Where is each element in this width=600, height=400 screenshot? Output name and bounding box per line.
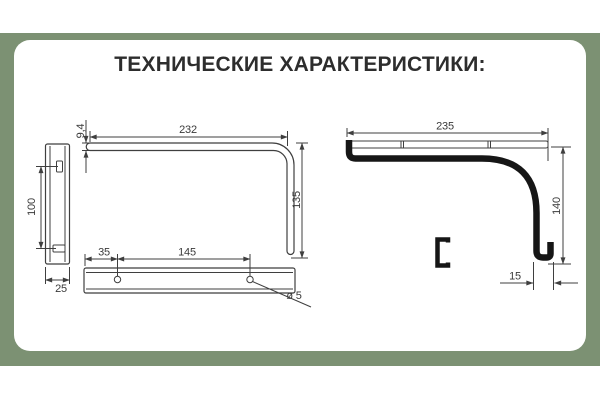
mount-bar-view: 35 145 ø 5 <box>84 247 311 308</box>
dim-hole-diameter: ø 5 <box>253 282 312 308</box>
dim-15: 15 <box>500 262 578 290</box>
dim-label-140: 140 <box>551 197 563 215</box>
wall-plate-side-view: 100 25 <box>26 144 70 295</box>
dim-label-145: 145 <box>178 247 196 259</box>
dim-25: 25 <box>46 267 70 295</box>
dim-100: 100 <box>26 167 58 249</box>
bracket-outline <box>86 143 294 255</box>
dim-label-235: 235 <box>436 121 454 133</box>
dim-label-35: 35 <box>98 247 110 259</box>
dim-label-9-4: 9,4 <box>75 124 87 139</box>
dim-label-232: 232 <box>179 124 197 136</box>
dim-label-15: 15 <box>509 271 521 283</box>
bracket-front-view: 232 9,4 135 <box>75 120 308 258</box>
dim-label-135: 135 <box>291 191 303 209</box>
dim-label-25: 25 <box>55 283 67 295</box>
bracket-side-view: 235 140 15 <box>347 121 578 291</box>
bar-hole-left <box>114 276 120 282</box>
dim-35-145: 35 145 <box>85 247 250 277</box>
clip-c-profile <box>438 240 449 266</box>
side-bar-ticks <box>401 141 491 149</box>
dim-9-4: 9,4 <box>75 120 91 173</box>
dim-label-diameter: ø 5 <box>286 290 301 302</box>
bar-hole-right <box>247 276 253 282</box>
plate-outline <box>46 144 70 264</box>
dim-label-100: 100 <box>26 198 38 216</box>
side-bar-outline <box>347 141 548 148</box>
technical-drawing: 100 25 232 9,4 135 <box>0 0 600 400</box>
